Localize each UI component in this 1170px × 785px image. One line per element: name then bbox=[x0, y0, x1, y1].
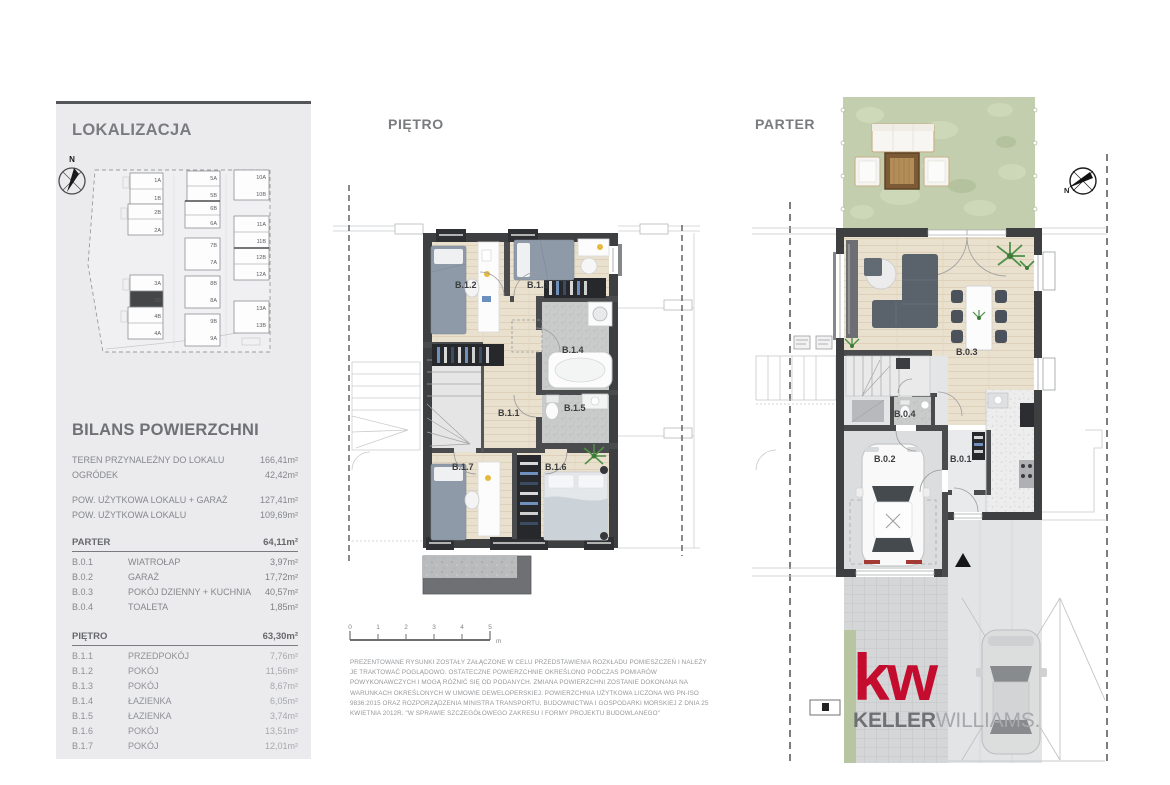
svg-text:6A: 6A bbox=[210, 221, 217, 227]
svg-text:13A: 13A bbox=[256, 306, 266, 312]
table-row: B.1.3 POKÓJ 8,67m² bbox=[72, 678, 298, 693]
table-row: B.1.5 ŁAZIENKA 3,74m² bbox=[72, 708, 298, 723]
svg-text:3A: 3A bbox=[154, 281, 161, 287]
svg-text:2: 2 bbox=[404, 624, 408, 631]
svg-text:5A: 5A bbox=[210, 176, 217, 182]
parter-section: PARTER 64,11m² B.0.1 WIATROŁAP 3,97m² B.… bbox=[72, 534, 298, 614]
svg-text:10B: 10B bbox=[256, 192, 266, 198]
room-label: B.1.4 bbox=[562, 345, 584, 355]
svg-text:2B: 2B bbox=[154, 210, 161, 216]
svg-text:8A: 8A bbox=[210, 298, 217, 304]
svg-text:4B: 4B bbox=[154, 314, 161, 320]
area-table: BILANS POWIERZCHNI TEREN PRZYNALEŻNY DO … bbox=[72, 421, 298, 753]
svg-text:6B: 6B bbox=[210, 206, 217, 212]
svg-text:5: 5 bbox=[488, 624, 492, 631]
table-row: B.1.6 POKÓJ 13,51m² bbox=[72, 723, 298, 738]
svg-text:7B: 7B bbox=[210, 243, 217, 249]
svg-text:2A: 2A bbox=[154, 228, 161, 234]
svg-text:m: m bbox=[496, 638, 501, 645]
svg-text:3B: 3B bbox=[154, 298, 161, 304]
svg-text:3: 3 bbox=[432, 624, 436, 631]
parter-section-header: PARTER 64,11m² bbox=[72, 534, 298, 552]
toilet-icon bbox=[546, 395, 560, 420]
outdoor-sofa-icon bbox=[872, 124, 934, 152]
keller-williams-logo: kw KELLERWILLIAMS. bbox=[853, 648, 1040, 733]
upper-floor-plan: B.1.2 B.1.3 B.1.4 B.1.5 B.1.1 B.1.7 B.1.… bbox=[330, 148, 730, 623]
svg-text:N: N bbox=[69, 155, 75, 164]
room-label: B.0.1 bbox=[950, 454, 972, 464]
table-row: B.1.4 ŁAZIENKA 6,05m² bbox=[72, 693, 298, 708]
summary-row: POW. UŻYTKOWA LOKALU 109,69m² bbox=[72, 507, 298, 522]
svg-text:0: 0 bbox=[348, 624, 352, 631]
room-label: B.1.5 bbox=[564, 403, 586, 413]
svg-text:12B: 12B bbox=[256, 255, 266, 261]
svg-text:13B: 13B bbox=[256, 323, 266, 329]
svg-text:9B: 9B bbox=[210, 319, 217, 325]
gate-box bbox=[810, 700, 840, 715]
svg-text:1: 1 bbox=[376, 624, 380, 631]
stove-icon bbox=[1019, 460, 1034, 488]
outdoor-table-icon bbox=[885, 153, 919, 189]
table-row: B.0.1 WIATROŁAP 3,97m² bbox=[72, 554, 298, 569]
bilans-title: BILANS POWIERZCHNI bbox=[72, 421, 298, 440]
bathtub-icon bbox=[548, 352, 612, 388]
svg-text:N: N bbox=[1064, 186, 1069, 195]
neighbour-unit-left bbox=[333, 224, 423, 541]
table-row: B.1.7 POKÓJ 12,01m² bbox=[72, 738, 298, 753]
media-wall bbox=[846, 240, 858, 338]
room-label: B.0.3 bbox=[956, 347, 978, 357]
svg-text:4: 4 bbox=[460, 624, 464, 631]
sink-icon bbox=[582, 394, 608, 409]
svg-text:1A: 1A bbox=[154, 178, 161, 184]
table-row: B.1.2 POKÓJ 11,56m² bbox=[72, 663, 298, 678]
disclaimer-note: PREZENTOWANE RYSUNKI ZOSTAŁY ZAŁĄCZONE W… bbox=[350, 658, 712, 719]
svg-text:8B: 8B bbox=[210, 281, 217, 287]
garage-door bbox=[856, 571, 934, 575]
svg-text:12A: 12A bbox=[256, 272, 266, 278]
keller-williams-wordmark: KELLERWILLIAMS. bbox=[853, 709, 1040, 733]
north-compass-icon: N bbox=[59, 155, 85, 194]
site-map: N bbox=[56, 144, 311, 376]
room-label: B.1.1 bbox=[498, 408, 520, 418]
svg-text:9A: 9A bbox=[210, 336, 217, 342]
svg-text:1B: 1B bbox=[154, 196, 161, 202]
neighbour-window-frames bbox=[1043, 252, 1055, 390]
bed-icon bbox=[514, 240, 574, 280]
room-label: B.1.3 bbox=[527, 280, 549, 290]
pietro-section: PIĘTRO 63,30m² B.1.1 PRZEDPOKÓJ 7,76m² B… bbox=[72, 628, 298, 753]
pietro-plan-title: PIĘTRO bbox=[388, 116, 444, 132]
svg-text:11B: 11B bbox=[257, 239, 267, 245]
wardrobe-icon bbox=[972, 432, 985, 460]
room-label: B.1.6 bbox=[545, 462, 567, 472]
room-label: B.1.2 bbox=[455, 280, 477, 290]
svg-text:11A: 11A bbox=[257, 222, 267, 228]
svg-text:4A: 4A bbox=[154, 331, 161, 337]
table-row: B.0.4 TOALETA 1,85m² bbox=[72, 599, 298, 614]
svg-text:7A: 7A bbox=[210, 260, 217, 266]
brochure-page: LOKALIZACJA N bbox=[0, 0, 1170, 785]
dining-table-icon bbox=[951, 286, 1007, 350]
washing-machine-icon bbox=[588, 302, 612, 326]
pietro-section-header: PIĘTRO 63,30m² bbox=[72, 628, 298, 646]
double-bed-icon bbox=[544, 466, 608, 540]
neighbour-unit-right bbox=[618, 224, 700, 548]
table-row: B.0.2 GARAŻ 17,72m² bbox=[72, 569, 298, 584]
room-label: B.0.2 bbox=[874, 454, 896, 464]
room-label: B.0.4 bbox=[894, 409, 916, 419]
window-sills bbox=[618, 244, 622, 276]
kw-monogram: kw bbox=[853, 648, 1040, 706]
scale-bar: 0 1 2 3 4 5 m bbox=[338, 622, 518, 650]
summary-row: OGRÓDEK 42,42m² bbox=[72, 467, 298, 482]
utility-meter-boxes bbox=[794, 336, 832, 349]
bed-icon bbox=[431, 246, 466, 334]
table-row: B.0.3 POKÓJ DZIENNY + KUCHNIA 40,57m² bbox=[72, 584, 298, 599]
table-row: B.1.1 PRZEDPOKÓJ 7,76m² bbox=[72, 648, 298, 663]
bed-icon bbox=[431, 464, 466, 540]
svg-text:10A: 10A bbox=[256, 175, 266, 181]
canopy-roof bbox=[423, 556, 531, 594]
lokalizacja-title: LOKALIZACJA bbox=[72, 121, 192, 140]
svg-text:5B: 5B bbox=[210, 193, 217, 199]
north-compass-icon: N bbox=[1064, 168, 1096, 195]
summary-row: POW. UŻYTKOWA LOKALU + GARAŻ 127,41m² bbox=[72, 492, 298, 507]
oven-icon bbox=[1020, 403, 1034, 427]
summary-row: TEREN PRZYNALEŻNY DO LOKALU 166,41m² bbox=[72, 452, 298, 467]
location-panel: LOKALIZACJA N bbox=[56, 101, 311, 759]
room-label: B.1.7 bbox=[452, 462, 474, 472]
